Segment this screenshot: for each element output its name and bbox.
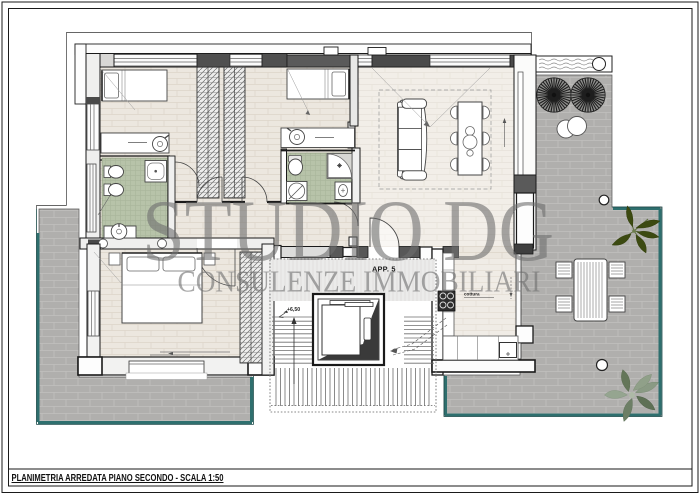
- svg-text:PLANIMETRIA ARREDATA PIANO SEC: PLANIMETRIA ARREDATA PIANO SECONDO - SCA…: [12, 473, 224, 484]
- svg-text:CONSULENZE IMMOBILIARI: CONSULENZE IMMOBILIARI: [178, 264, 541, 299]
- svg-text:+6,50: +6,50: [287, 307, 300, 313]
